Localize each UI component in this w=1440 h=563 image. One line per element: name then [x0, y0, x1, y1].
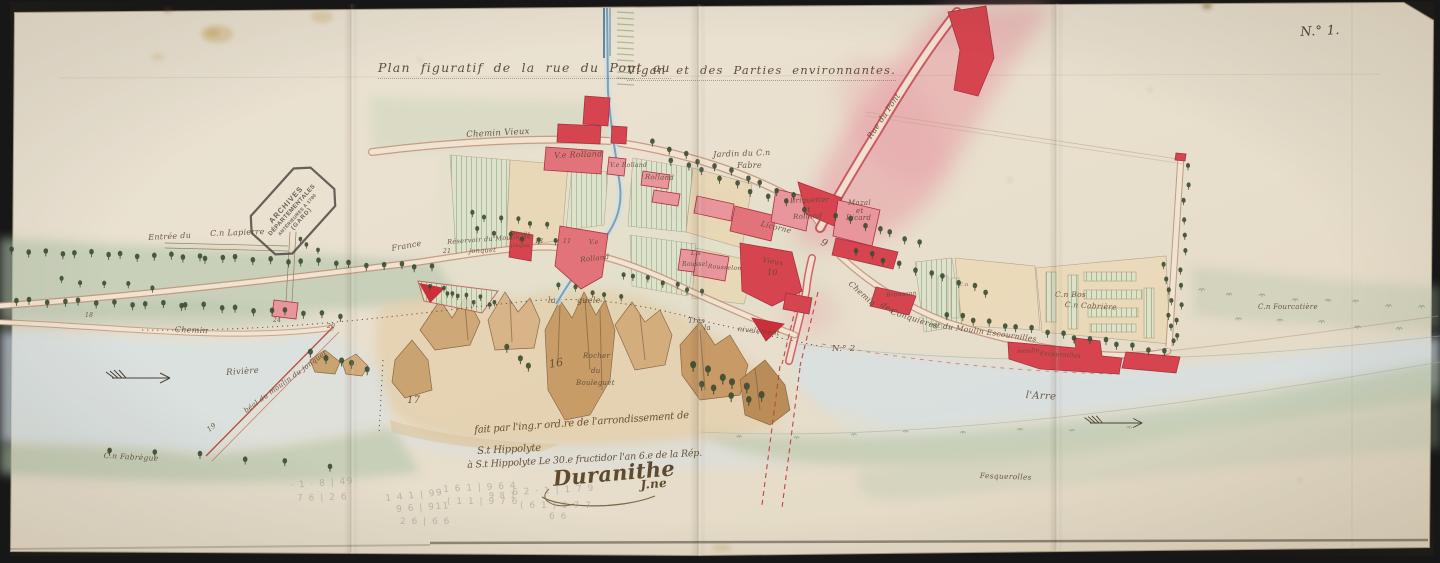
vignette — [10, 2, 1434, 556]
map-scan: ARCHIVES DÉPARTEMENTALES ANTÉRIEURES À 1… — [0, 0, 1440, 563]
map-artwork — [0, 0, 1440, 563]
